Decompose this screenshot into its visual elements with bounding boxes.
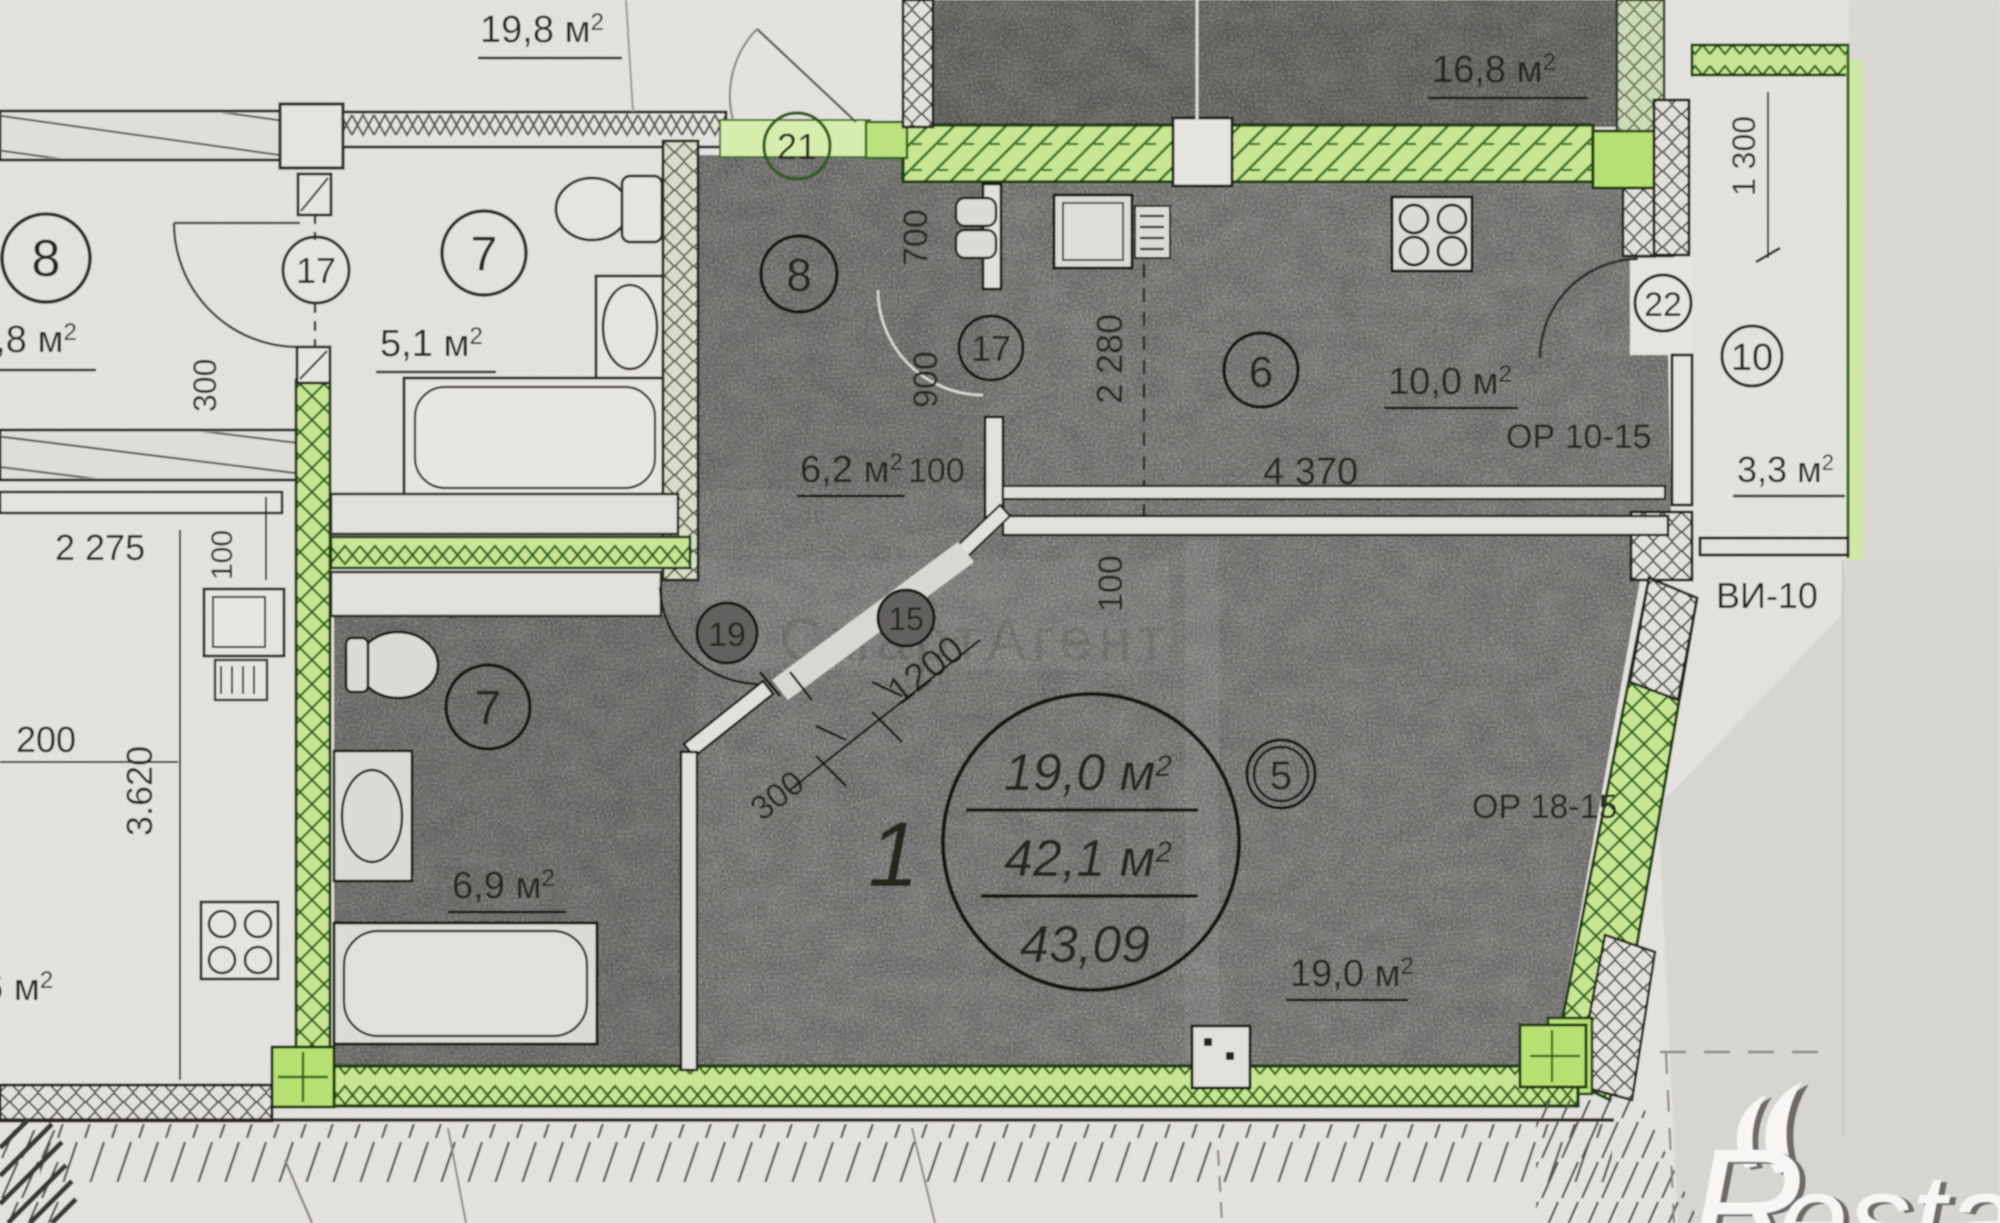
svg-text:43,09: 43,09 [1020, 916, 1150, 974]
svg-text:7: 7 [471, 228, 498, 281]
svg-text:5: 5 [1270, 754, 1292, 798]
svg-text:10,0 м2: 10,0 м2 [1388, 361, 1512, 403]
svg-text:22: 22 [1644, 286, 1682, 324]
svg-text:16,8 м2: 16,8 м2 [1432, 49, 1556, 91]
svg-text:10: 10 [1731, 337, 1773, 379]
svg-text:ВИ-10: ВИ-10 [1716, 575, 1818, 616]
svg-text:19,0 м2: 19,0 м2 [1004, 744, 1172, 802]
svg-text:ОР 10-15: ОР 10-15 [1506, 418, 1652, 456]
svg-text:8: 8 [32, 230, 61, 288]
svg-text:6,9 м2: 6,9 м2 [452, 865, 555, 907]
svg-text:17: 17 [296, 250, 336, 291]
svg-text:42,1 м2: 42,1 м2 [1004, 830, 1172, 888]
svg-text:estate: estate [1778, 1148, 2000, 1223]
svg-text:3,3 м2: 3,3 м2 [1737, 449, 1834, 490]
svg-text:1 300: 1 300 [1726, 116, 1762, 196]
svg-text:19: 19 [708, 616, 746, 654]
svg-text:100: 100 [1092, 555, 1130, 612]
svg-text:300: 300 [187, 359, 223, 412]
svg-text:8: 8 [786, 249, 812, 301]
svg-text:6,2 м2: 6,2 м2 [800, 449, 903, 491]
svg-text:17: 17 [971, 328, 1011, 369]
svg-text:900: 900 [907, 351, 945, 408]
svg-text:100: 100 [206, 530, 239, 580]
svg-text:21: 21 [777, 126, 817, 167]
svg-text:15: 15 [888, 601, 924, 637]
svg-text:7: 7 [475, 682, 502, 735]
svg-text:19,8 м2: 19,8 м2 [480, 9, 604, 51]
svg-text:3.620: 3.620 [119, 746, 160, 836]
svg-text:100: 100 [908, 452, 965, 490]
svg-text:6: 6 [1249, 348, 1273, 397]
svg-text:2 275: 2 275 [55, 527, 145, 568]
svg-text:5,1 м2: 5,1 м2 [380, 323, 483, 365]
svg-text:700: 700 [897, 209, 935, 266]
svg-text:1: 1 [868, 804, 919, 906]
svg-text:2 280: 2 280 [1089, 314, 1130, 404]
svg-text:200: 200 [16, 719, 76, 760]
svg-text:19,0 м2: 19,0 м2 [1290, 953, 1414, 995]
svg-text:ОР 18-15: ОР 18-15 [1472, 788, 1618, 826]
